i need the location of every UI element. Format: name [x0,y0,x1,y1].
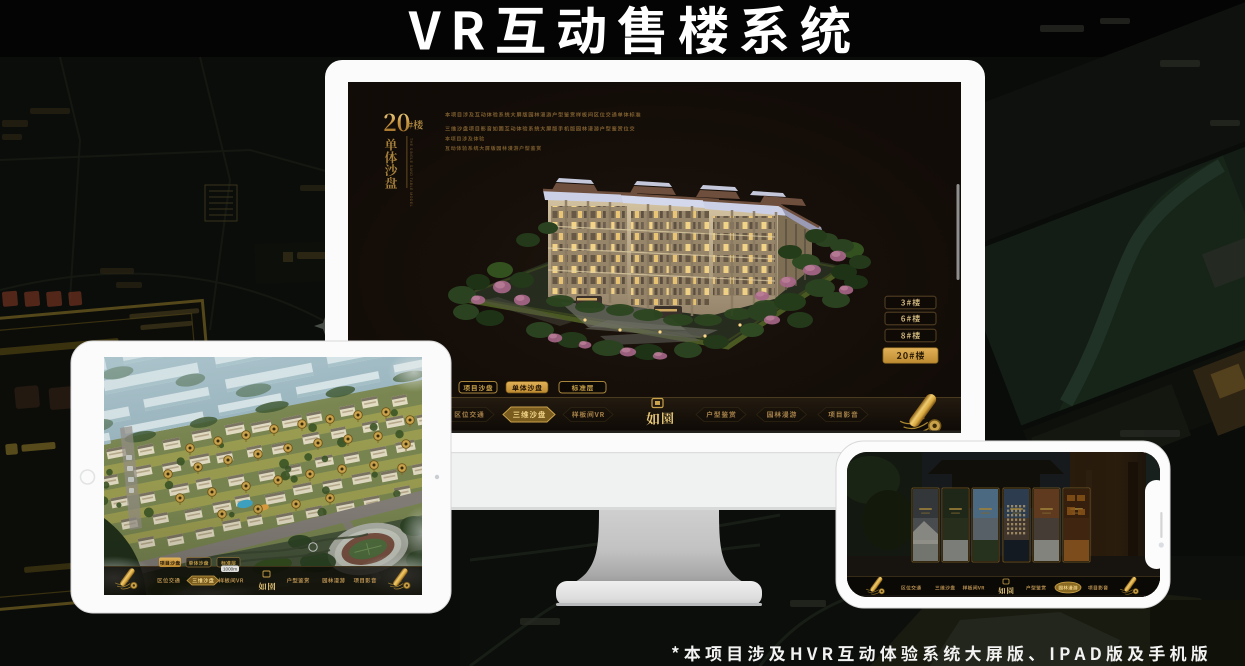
svg-text:THE SINGLE SAND TABLE MODEL: THE SINGLE SAND TABLE MODEL [409,138,413,207]
svg-text:1000m: 1000m [223,567,237,572]
